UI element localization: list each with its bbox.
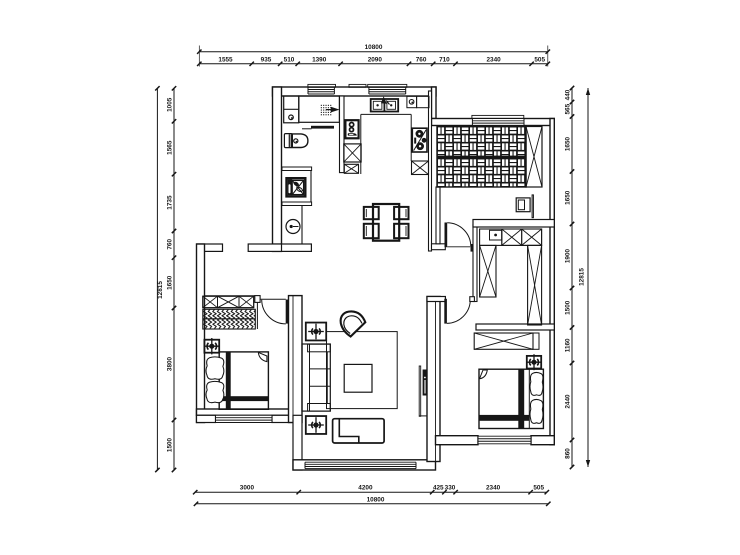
svg-text:12815: 12815 [579, 268, 586, 286]
svg-text:860: 860 [564, 448, 571, 459]
svg-text:1555: 1555 [218, 56, 233, 63]
svg-text:1565: 1565 [167, 140, 174, 155]
svg-text:710: 710 [439, 56, 450, 63]
svg-text:330: 330 [445, 485, 456, 492]
svg-text:1005: 1005 [167, 97, 174, 112]
svg-text:565: 565 [564, 103, 571, 114]
svg-text:510: 510 [284, 56, 295, 63]
svg-text:425: 425 [433, 485, 444, 492]
svg-text:1160: 1160 [564, 338, 571, 352]
svg-text:935: 935 [261, 56, 272, 63]
svg-text:505: 505 [534, 56, 545, 63]
svg-text:1650: 1650 [564, 136, 571, 151]
svg-text:12815: 12815 [157, 281, 164, 299]
svg-text:1390: 1390 [312, 56, 327, 63]
svg-text:760: 760 [416, 56, 427, 63]
svg-text:2340: 2340 [486, 56, 501, 63]
svg-text:1500: 1500 [564, 300, 571, 315]
svg-text:2440: 2440 [564, 394, 571, 409]
svg-text:1650: 1650 [167, 275, 174, 290]
svg-text:505: 505 [533, 485, 544, 492]
svg-text:4200: 4200 [358, 485, 373, 492]
svg-text:1650: 1650 [564, 190, 571, 205]
svg-text:3000: 3000 [240, 485, 255, 492]
svg-text:1735: 1735 [167, 195, 174, 210]
svg-text:2340: 2340 [486, 485, 501, 492]
svg-text:1900: 1900 [564, 248, 571, 263]
svg-text:760: 760 [167, 239, 174, 250]
svg-text:440: 440 [564, 89, 571, 100]
svg-text:3800: 3800 [167, 356, 174, 371]
svg-text:10800: 10800 [365, 44, 383, 51]
svg-text:10800: 10800 [367, 496, 385, 503]
svg-text:1500: 1500 [167, 437, 174, 452]
svg-text:2090: 2090 [368, 56, 383, 63]
